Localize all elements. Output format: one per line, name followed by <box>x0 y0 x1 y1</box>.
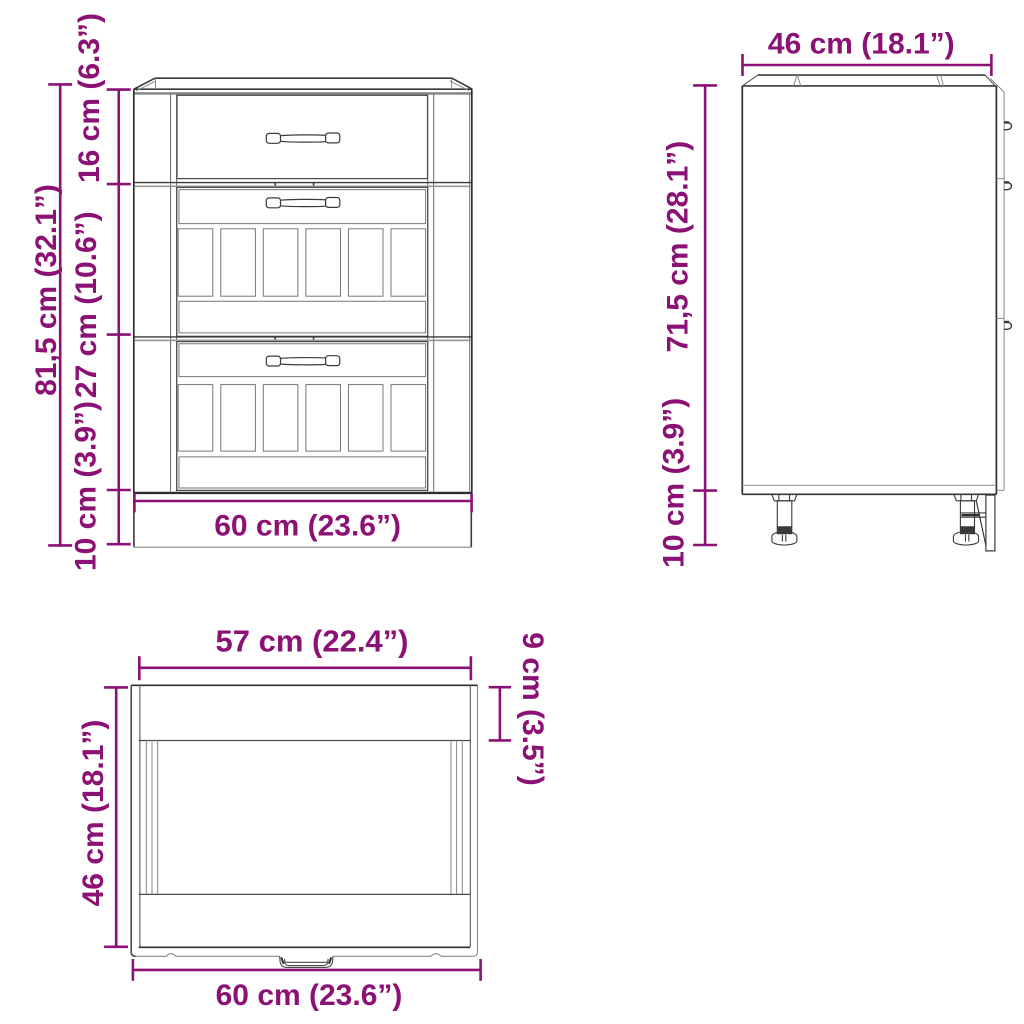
svg-text:60 cm (23.6”): 60 cm (23.6”) <box>214 510 401 543</box>
svg-text:46 cm (18.1”): 46 cm (18.1”) <box>77 720 110 907</box>
svg-text:10 cm (3.9”): 10 cm (3.9”) <box>658 398 691 568</box>
svg-text:16 cm (6.3”): 16 cm (6.3”) <box>73 13 106 183</box>
svg-text:27 cm (10.6”): 27 cm (10.6”) <box>70 211 103 398</box>
svg-text:57 cm (22.4”): 57 cm (22.4”) <box>216 624 409 659</box>
svg-text:60 cm (23.6”): 60 cm (23.6”) <box>216 979 403 1012</box>
svg-text:71,5 cm (28.1”): 71,5 cm (28.1”) <box>662 141 695 353</box>
svg-text:81,5 cm (32.1”): 81,5 cm (32.1”) <box>30 184 63 396</box>
svg-text:46 cm (18.1”): 46 cm (18.1”) <box>768 28 955 61</box>
svg-text:10 cm (3.9”): 10 cm (3.9”) <box>70 401 103 571</box>
svg-text:9 cm (3.5”): 9 cm (3.5”) <box>516 632 549 785</box>
